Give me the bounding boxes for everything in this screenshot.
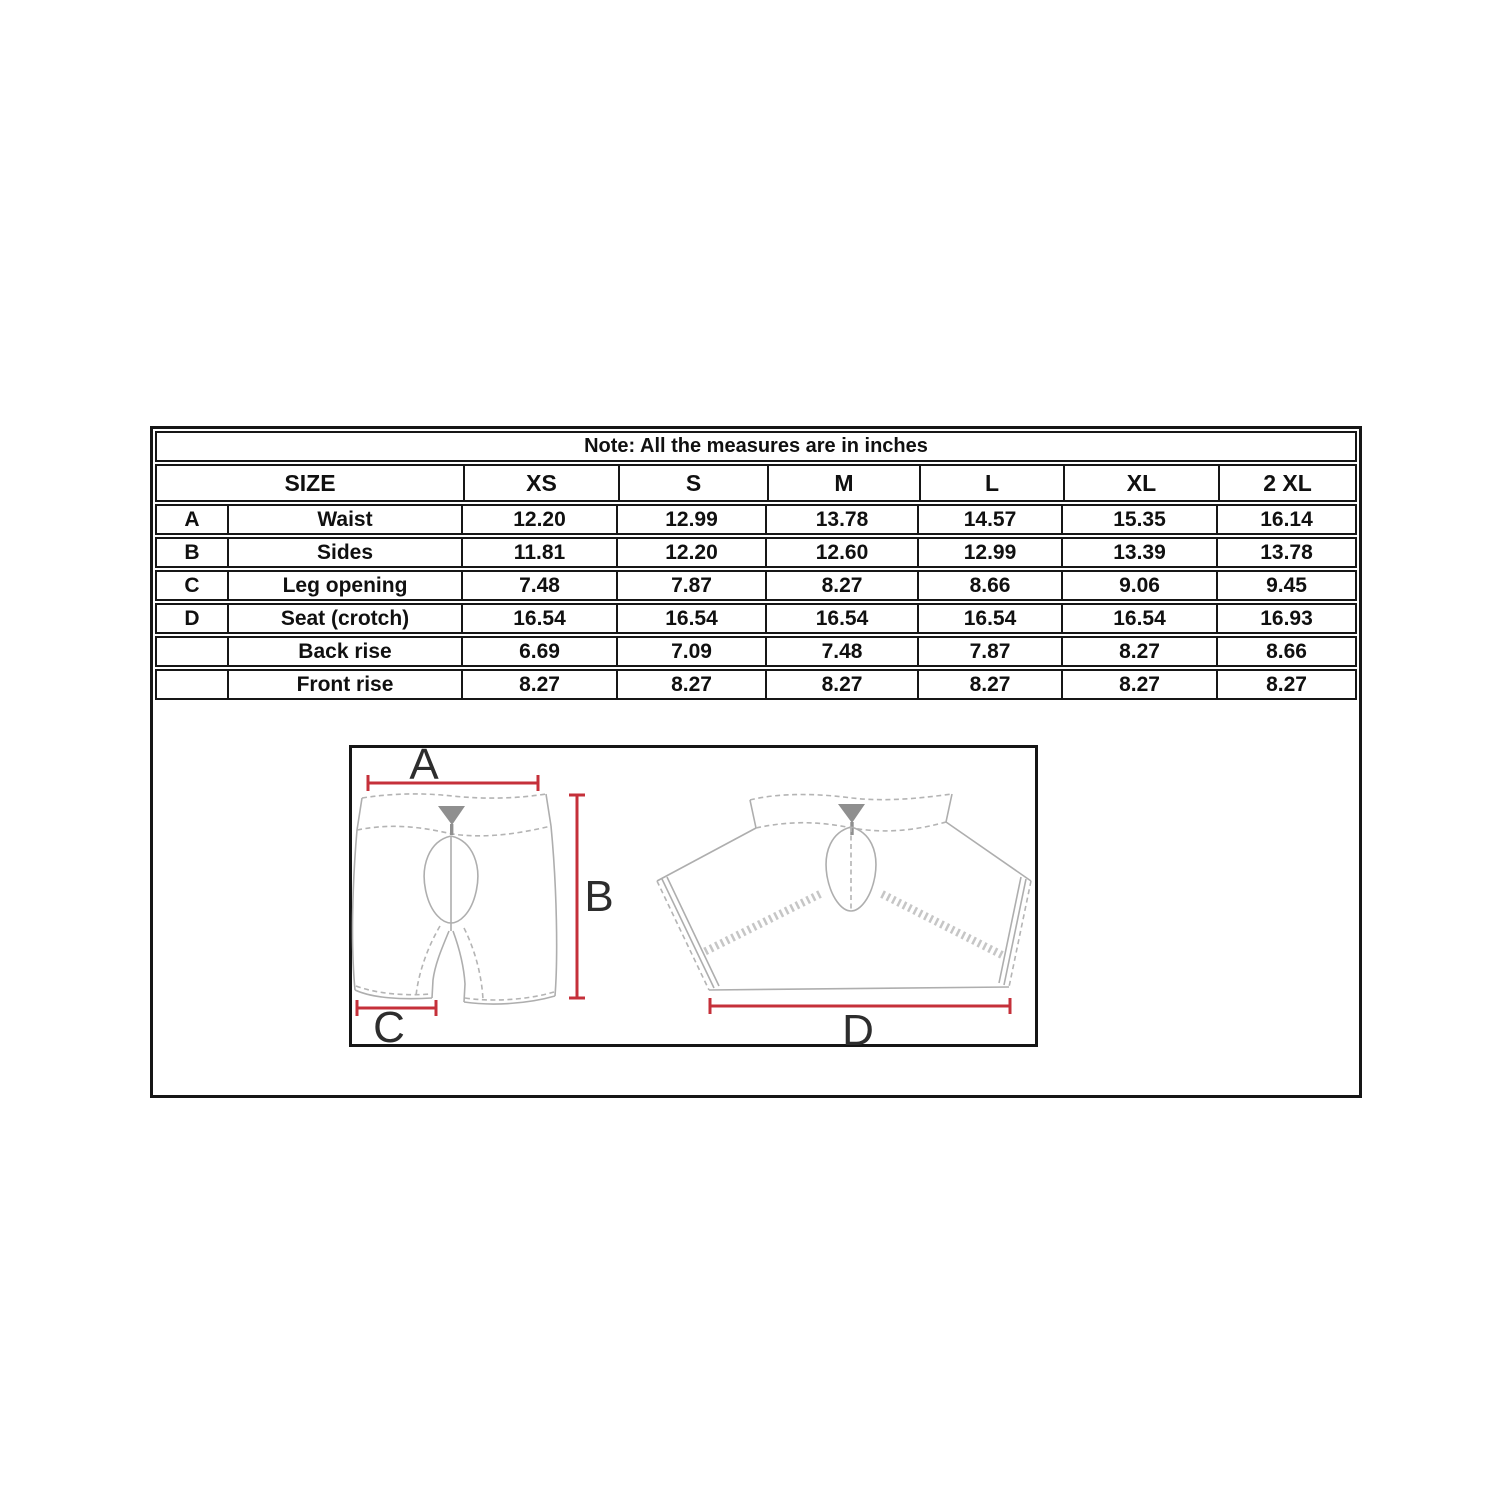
row-letter: D — [157, 605, 229, 632]
cell-value: 8.27 — [1218, 671, 1355, 698]
waistband-logo-icon — [438, 806, 465, 835]
row-label: Waist — [229, 506, 463, 533]
row-letter: C — [157, 572, 229, 599]
cell-value: 16.54 — [618, 605, 767, 632]
row-label: Back rise — [229, 638, 463, 665]
table-header-row: SIZE XS S M L XL 2 XL — [155, 464, 1357, 502]
row-letter — [157, 671, 229, 698]
cell-value: 12.60 — [767, 539, 919, 566]
cell-value: 14.57 — [919, 506, 1063, 533]
row-letter — [157, 638, 229, 665]
front-view-sketch — [353, 794, 557, 1004]
dimension-line-a — [368, 775, 538, 791]
cell-value: 16.93 — [1218, 605, 1355, 632]
table-row-sides: B Sides 11.81 12.20 12.60 12.99 13.39 13… — [155, 537, 1357, 568]
cell-value: 8.27 — [767, 671, 919, 698]
cell-value: 13.78 — [1218, 539, 1355, 566]
size-header: SIZE — [157, 466, 465, 500]
cell-value: 13.78 — [767, 506, 919, 533]
cell-value: 7.87 — [919, 638, 1063, 665]
row-label: Leg opening — [229, 572, 463, 599]
cell-value: 16.14 — [1218, 506, 1355, 533]
col-header-s: S — [620, 466, 769, 500]
table-row-leg-opening: C Leg opening 7.48 7.87 8.27 8.66 9.06 9… — [155, 570, 1357, 601]
spec-sheet-frame: Note: All the measures are in inches SIZ… — [150, 426, 1362, 1098]
seat-view-sketch — [657, 794, 1031, 990]
measurement-diagram-frame: A B C D — [349, 745, 1038, 1047]
row-letter: A — [157, 506, 229, 533]
table-row-front-rise: Front rise 8.27 8.27 8.27 8.27 8.27 8.27 — [155, 669, 1357, 700]
size-chart-page: Note: All the measures are in inches SIZ… — [0, 0, 1500, 1500]
cell-value: 12.20 — [463, 506, 618, 533]
cell-value: 15.35 — [1063, 506, 1218, 533]
cell-value: 13.39 — [1063, 539, 1218, 566]
label-a: A — [409, 740, 439, 789]
cell-value: 8.27 — [1063, 671, 1218, 698]
cell-value: 16.54 — [1063, 605, 1218, 632]
col-header-xs: XS — [465, 466, 620, 500]
label-b: B — [584, 872, 613, 921]
col-header-l: L — [921, 466, 1065, 500]
cell-value: 12.99 — [919, 539, 1063, 566]
cell-value: 8.27 — [463, 671, 618, 698]
cell-value: 7.48 — [767, 638, 919, 665]
cell-value: 8.27 — [1063, 638, 1218, 665]
cell-value: 9.06 — [1063, 572, 1218, 599]
measurement-diagram: A B C D — [352, 748, 1035, 1044]
cell-value: 7.87 — [618, 572, 767, 599]
cell-value: 8.27 — [618, 671, 767, 698]
row-letter: B — [157, 539, 229, 566]
cell-value: 6.69 — [463, 638, 618, 665]
cell-value: 12.99 — [618, 506, 767, 533]
cell-value: 8.27 — [919, 671, 1063, 698]
col-header-xl: XL — [1065, 466, 1220, 500]
label-c: C — [373, 1003, 405, 1052]
label-d: D — [842, 1006, 874, 1055]
cell-value: 7.09 — [618, 638, 767, 665]
cell-value: 11.81 — [463, 539, 618, 566]
cell-value: 16.54 — [919, 605, 1063, 632]
table-row-seat: D Seat (crotch) 16.54 16.54 16.54 16.54 … — [155, 603, 1357, 634]
note-text: Note: All the measures are in inches — [157, 433, 1355, 460]
row-label: Seat (crotch) — [229, 605, 463, 632]
cell-value: 8.66 — [1218, 638, 1355, 665]
cell-value: 16.54 — [463, 605, 618, 632]
table-row-back-rise: Back rise 6.69 7.09 7.48 7.87 8.27 8.66 — [155, 636, 1357, 667]
cell-value: 9.45 — [1218, 572, 1355, 599]
note-row: Note: All the measures are in inches — [155, 431, 1357, 462]
col-header-m: M — [769, 466, 921, 500]
cell-value: 16.54 — [767, 605, 919, 632]
table-row-waist: A Waist 12.20 12.99 13.78 14.57 15.35 16… — [155, 504, 1357, 535]
cell-value: 7.48 — [463, 572, 618, 599]
dimension-line-b — [569, 795, 585, 998]
cell-value: 12.20 — [618, 539, 767, 566]
cell-value: 8.27 — [767, 572, 919, 599]
row-label: Front rise — [229, 671, 463, 698]
col-header-2xl: 2 XL — [1220, 466, 1355, 500]
cell-value: 8.66 — [919, 572, 1063, 599]
row-label: Sides — [229, 539, 463, 566]
